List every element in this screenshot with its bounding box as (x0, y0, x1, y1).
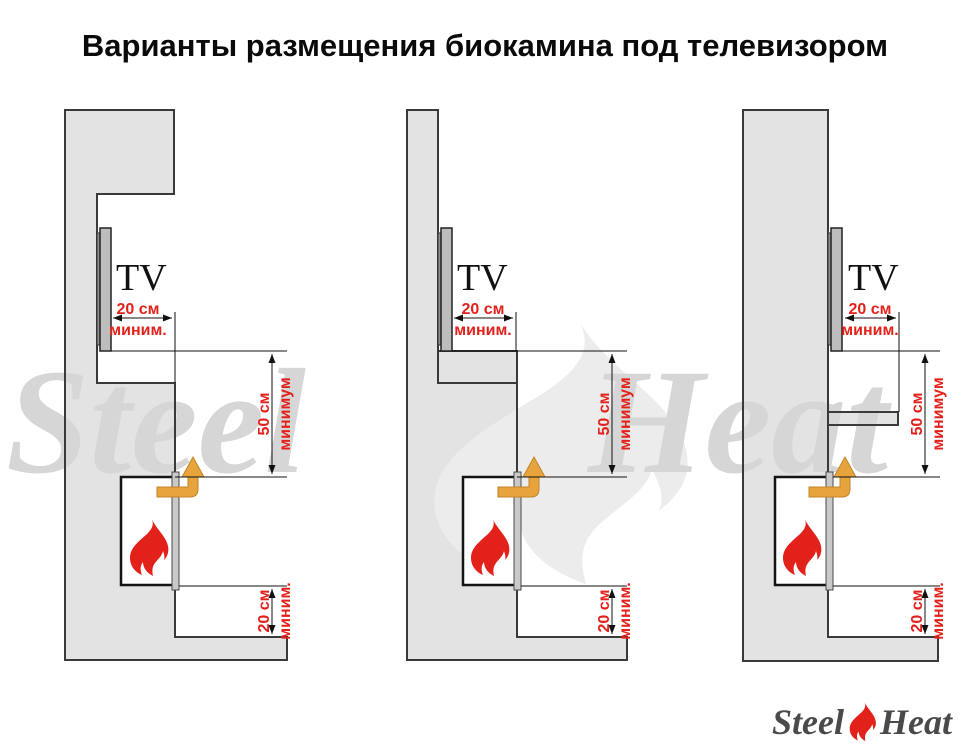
dim-qualifier: миним. (277, 582, 294, 639)
dim-fireplace-to-base: 20 см миним. (179, 582, 294, 639)
dim-value: 50 см (596, 393, 613, 436)
dim-qualifier: миним. (617, 582, 634, 639)
dim-value: 20 см (849, 301, 892, 318)
dim-fireplace-to-base: 20 см миним. (833, 582, 947, 639)
dim-value: 50 см (256, 393, 273, 436)
dim-qualifier: минимум (277, 377, 294, 450)
dim-fireplace-to-base: 20 см миним. (521, 582, 634, 639)
dim-qualifier: миним. (454, 322, 511, 339)
tv-panel (441, 228, 452, 351)
dim-qualifier: минимум (617, 377, 634, 450)
placement-diagrams-canvas: Steel Heat TV 20 см миним. (0, 0, 970, 749)
dim-qualifier: миним. (930, 582, 947, 639)
dim-value: 20 см (909, 590, 926, 633)
logo-heat-text: Heat (880, 701, 952, 743)
logo-steel-text: Steel (772, 701, 844, 743)
dim-value: 20 см (256, 590, 273, 633)
tv-label: TV (457, 257, 508, 299)
dim-tv-clearance: 20 см миним. (454, 301, 516, 351)
dim-value: 20 см (117, 301, 160, 318)
logo-flame-icon (847, 702, 877, 742)
infographic-page: Варианты размещения биокамина под телеви… (0, 0, 970, 749)
dim-qualifier: миним. (109, 322, 166, 339)
dim-value: 20 см (462, 301, 505, 318)
dim-value: 50 см (909, 393, 926, 436)
steelheat-logo: Steel Heat (772, 701, 952, 743)
tv-label: TV (116, 257, 167, 299)
dim-qualifier: минимум (930, 377, 947, 450)
dim-value: 20 см (596, 590, 613, 633)
dim-qualifier: миним. (841, 322, 898, 339)
mantel-slab-variant-2 (438, 351, 517, 383)
tv-label: TV (848, 257, 899, 299)
